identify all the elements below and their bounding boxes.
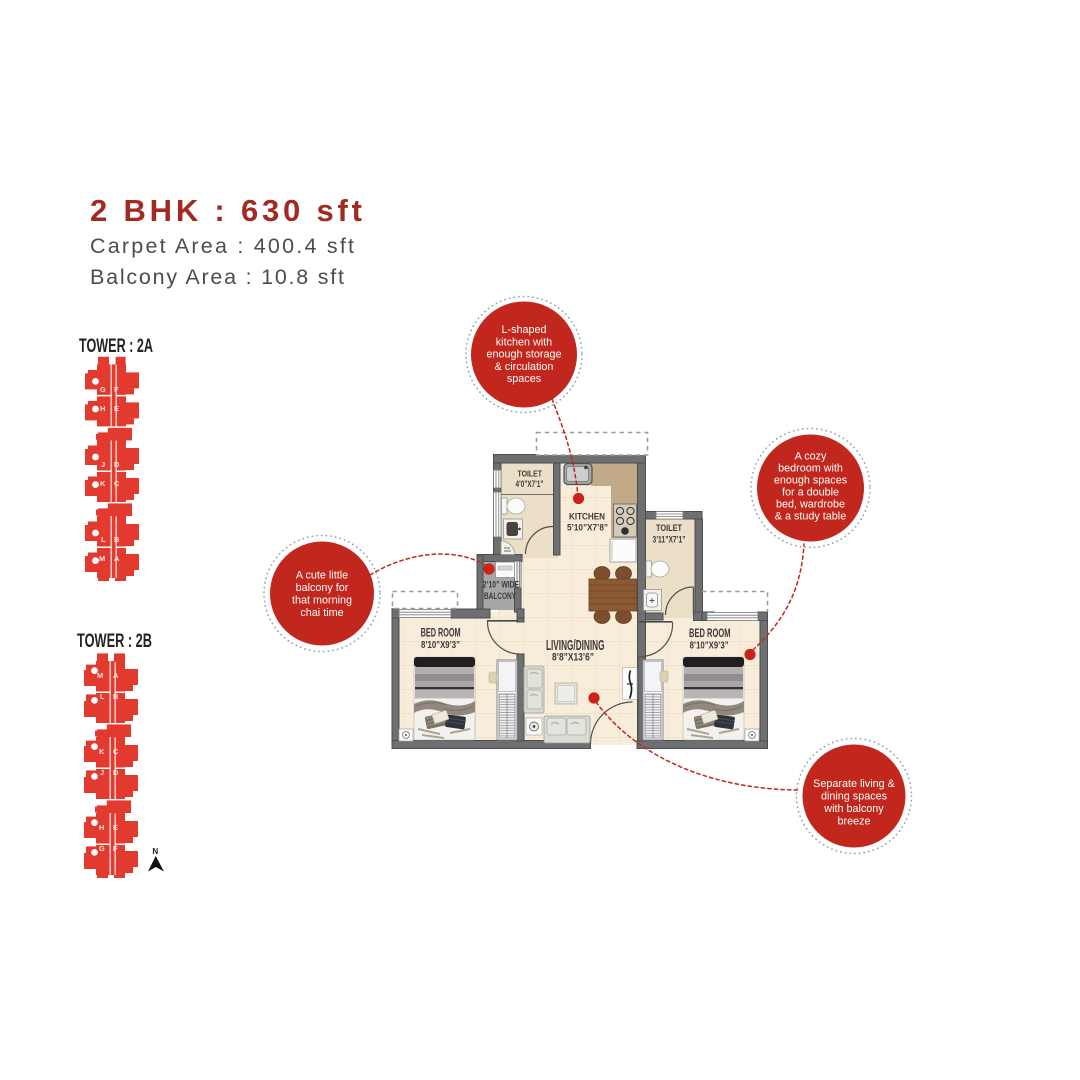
svg-text:& a study table: & a study table <box>775 511 846 523</box>
svg-text:Carpet Area : 400.4 sft: Carpet Area : 400.4 sft <box>90 234 354 258</box>
svg-text:J: J <box>101 460 105 469</box>
svg-text:BED ROOM: BED ROOM <box>421 626 461 640</box>
svg-text:L-shaped: L-shaped <box>501 324 546 336</box>
svg-text:that morning: that morning <box>292 595 352 607</box>
svg-text:H: H <box>100 404 105 413</box>
svg-text:bedroom with: bedroom with <box>778 463 843 475</box>
svg-text:M: M <box>99 554 105 563</box>
svg-text:K: K <box>99 747 105 756</box>
svg-text:dining spaces: dining spaces <box>821 791 888 803</box>
svg-text:M: M <box>97 671 103 680</box>
svg-text:4’0”X7’1”: 4’0”X7’1” <box>516 479 544 489</box>
svg-text:5’10”X7’8”: 5’10”X7’8” <box>567 523 608 533</box>
svg-text:8’10”X9’3”: 8’10”X9’3” <box>421 640 460 651</box>
svg-text:enough storage: enough storage <box>486 349 561 361</box>
svg-text:TOILET: TOILET <box>518 468 543 478</box>
svg-text:with balcony: with balcony <box>823 803 884 815</box>
svg-text:C: C <box>113 747 119 756</box>
svg-text:B: B <box>114 535 119 544</box>
svg-text:TOWER : 2B: TOWER : 2B <box>77 630 152 652</box>
svg-text:L: L <box>100 692 105 701</box>
svg-text:TOILET: TOILET <box>656 523 682 534</box>
svg-text:D: D <box>113 768 119 777</box>
svg-text:spaces: spaces <box>507 373 542 385</box>
svg-text:J: J <box>100 768 104 777</box>
svg-text:A cute little: A cute little <box>296 570 348 582</box>
svg-text:BED ROOM: BED ROOM <box>689 626 731 640</box>
svg-text:bed, wardrobe: bed, wardrobe <box>776 499 845 511</box>
svg-text:chai time: chai time <box>300 607 343 619</box>
svg-text:A: A <box>114 554 120 563</box>
svg-text:G: G <box>100 385 106 394</box>
svg-text:G: G <box>99 844 105 853</box>
svg-text:F: F <box>114 385 119 394</box>
svg-text:A: A <box>113 671 119 680</box>
svg-text:breeze: breeze <box>837 816 870 828</box>
svg-text:Balcony Area : 10.8 sft: Balcony Area : 10.8 sft <box>90 265 344 289</box>
svg-text:A cozy: A cozy <box>795 451 827 463</box>
svg-text:E: E <box>113 823 118 832</box>
svg-text:B: B <box>113 692 118 701</box>
svg-text:F: F <box>113 844 118 853</box>
svg-text:balcony for: balcony for <box>296 582 349 594</box>
svg-text:2 BHK : 630 sft: 2 BHK : 630 sft <box>90 193 362 228</box>
svg-text:enough spaces: enough spaces <box>774 475 848 487</box>
svg-text:2’10” WIDE: 2’10” WIDE <box>483 579 519 590</box>
svg-text:K: K <box>100 479 106 488</box>
svg-text:8’10”X9’3”: 8’10”X9’3” <box>690 641 729 652</box>
svg-text:TOWER : 2A: TOWER : 2A <box>79 335 153 357</box>
svg-text:L: L <box>101 535 106 544</box>
svg-text:8’8”X13’6”: 8’8”X13’6” <box>552 651 594 663</box>
svg-text:N: N <box>152 847 158 856</box>
svg-text:E: E <box>114 404 119 413</box>
svg-text:3’11”X7’1”: 3’11”X7’1” <box>653 535 686 545</box>
svg-text:Separate living &: Separate living & <box>813 778 895 790</box>
svg-text:kitchen with: kitchen with <box>496 336 552 348</box>
svg-text:& circulation: & circulation <box>495 361 554 373</box>
svg-text:BALCONY: BALCONY <box>484 591 516 602</box>
svg-text:D: D <box>114 460 120 469</box>
svg-text:KITCHEN: KITCHEN <box>569 511 605 522</box>
svg-text:H: H <box>99 823 104 832</box>
svg-text:C: C <box>114 479 120 488</box>
svg-text:for a double: for a double <box>782 487 839 499</box>
